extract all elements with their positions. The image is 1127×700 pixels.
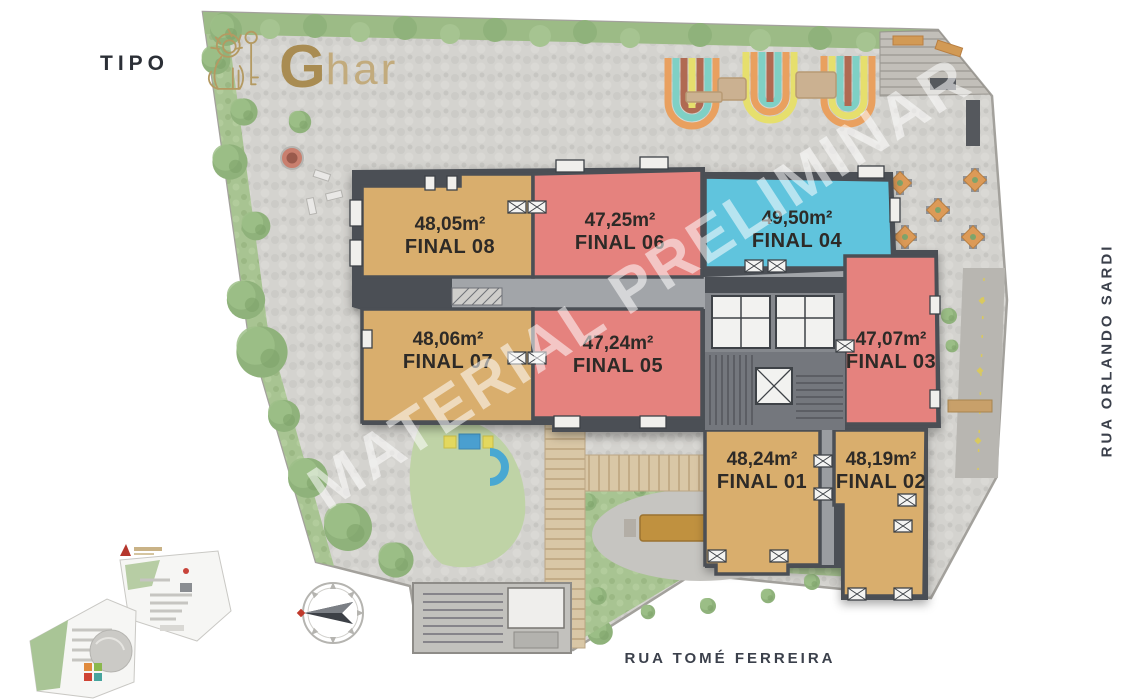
- corridor-hatch: [452, 288, 502, 305]
- unit-final-07-area: 48,06m²: [413, 329, 484, 350]
- unit-final-05-name: FINAL 05: [573, 355, 663, 377]
- unit-final-02-area: 48,19m²: [846, 449, 917, 470]
- stairwell: [705, 352, 845, 430]
- minimap-upper: [120, 544, 231, 641]
- unit-final-05-area: 47,24m²: [583, 333, 654, 354]
- unit-final-01-area: 48,24m²: [727, 449, 798, 470]
- minimap-lower: [30, 599, 136, 698]
- brand-name-rest: har: [326, 50, 399, 90]
- unit-final-02-name: FINAL 02: [836, 471, 926, 493]
- brand-initial: G: [279, 41, 326, 92]
- unit-final-08-name: FINAL 08: [405, 236, 495, 258]
- street-label-right-text: RUA ORLANDO SARDI: [1099, 243, 1116, 457]
- site-plan-svg: 48,05m² FINAL 08 47,25m² FINAL 06 49,50m…: [0, 0, 1127, 700]
- unit-final-01-name: FINAL 01: [717, 471, 807, 493]
- tipo-label: TIPO: [100, 52, 169, 76]
- street-label-right: RUA ORLANDO SARDI: [1094, 225, 1120, 475]
- ghar-lion-key-logo-icon: [191, 18, 277, 98]
- unit-final-08-area: 48,05m²: [415, 214, 486, 235]
- compass-rose-icon: [297, 582, 364, 644]
- unit-final-03-area: 47,07m²: [856, 329, 927, 350]
- elevators: [705, 277, 845, 348]
- unit-final-03-name: FINAL 03: [846, 351, 936, 373]
- playground: [668, 52, 872, 126]
- unit-final-06-area: 47,25m²: [585, 210, 656, 231]
- unit-final-07-name: FINAL 07: [403, 351, 493, 373]
- unit-final-06-name: FINAL 06: [575, 232, 665, 254]
- street-label-bottom: RUA TOMÉ FERREIRA: [545, 650, 915, 667]
- header: TIPO G har: [100, 18, 398, 98]
- unit-final-04-area: 49,50m²: [762, 208, 833, 229]
- floor-plan-page: 48,05m² FINAL 08 47,25m² FINAL 06 49,50m…: [0, 0, 1127, 700]
- unit-final-04-name: FINAL 04: [752, 230, 843, 252]
- entrance-stairs: [413, 583, 571, 653]
